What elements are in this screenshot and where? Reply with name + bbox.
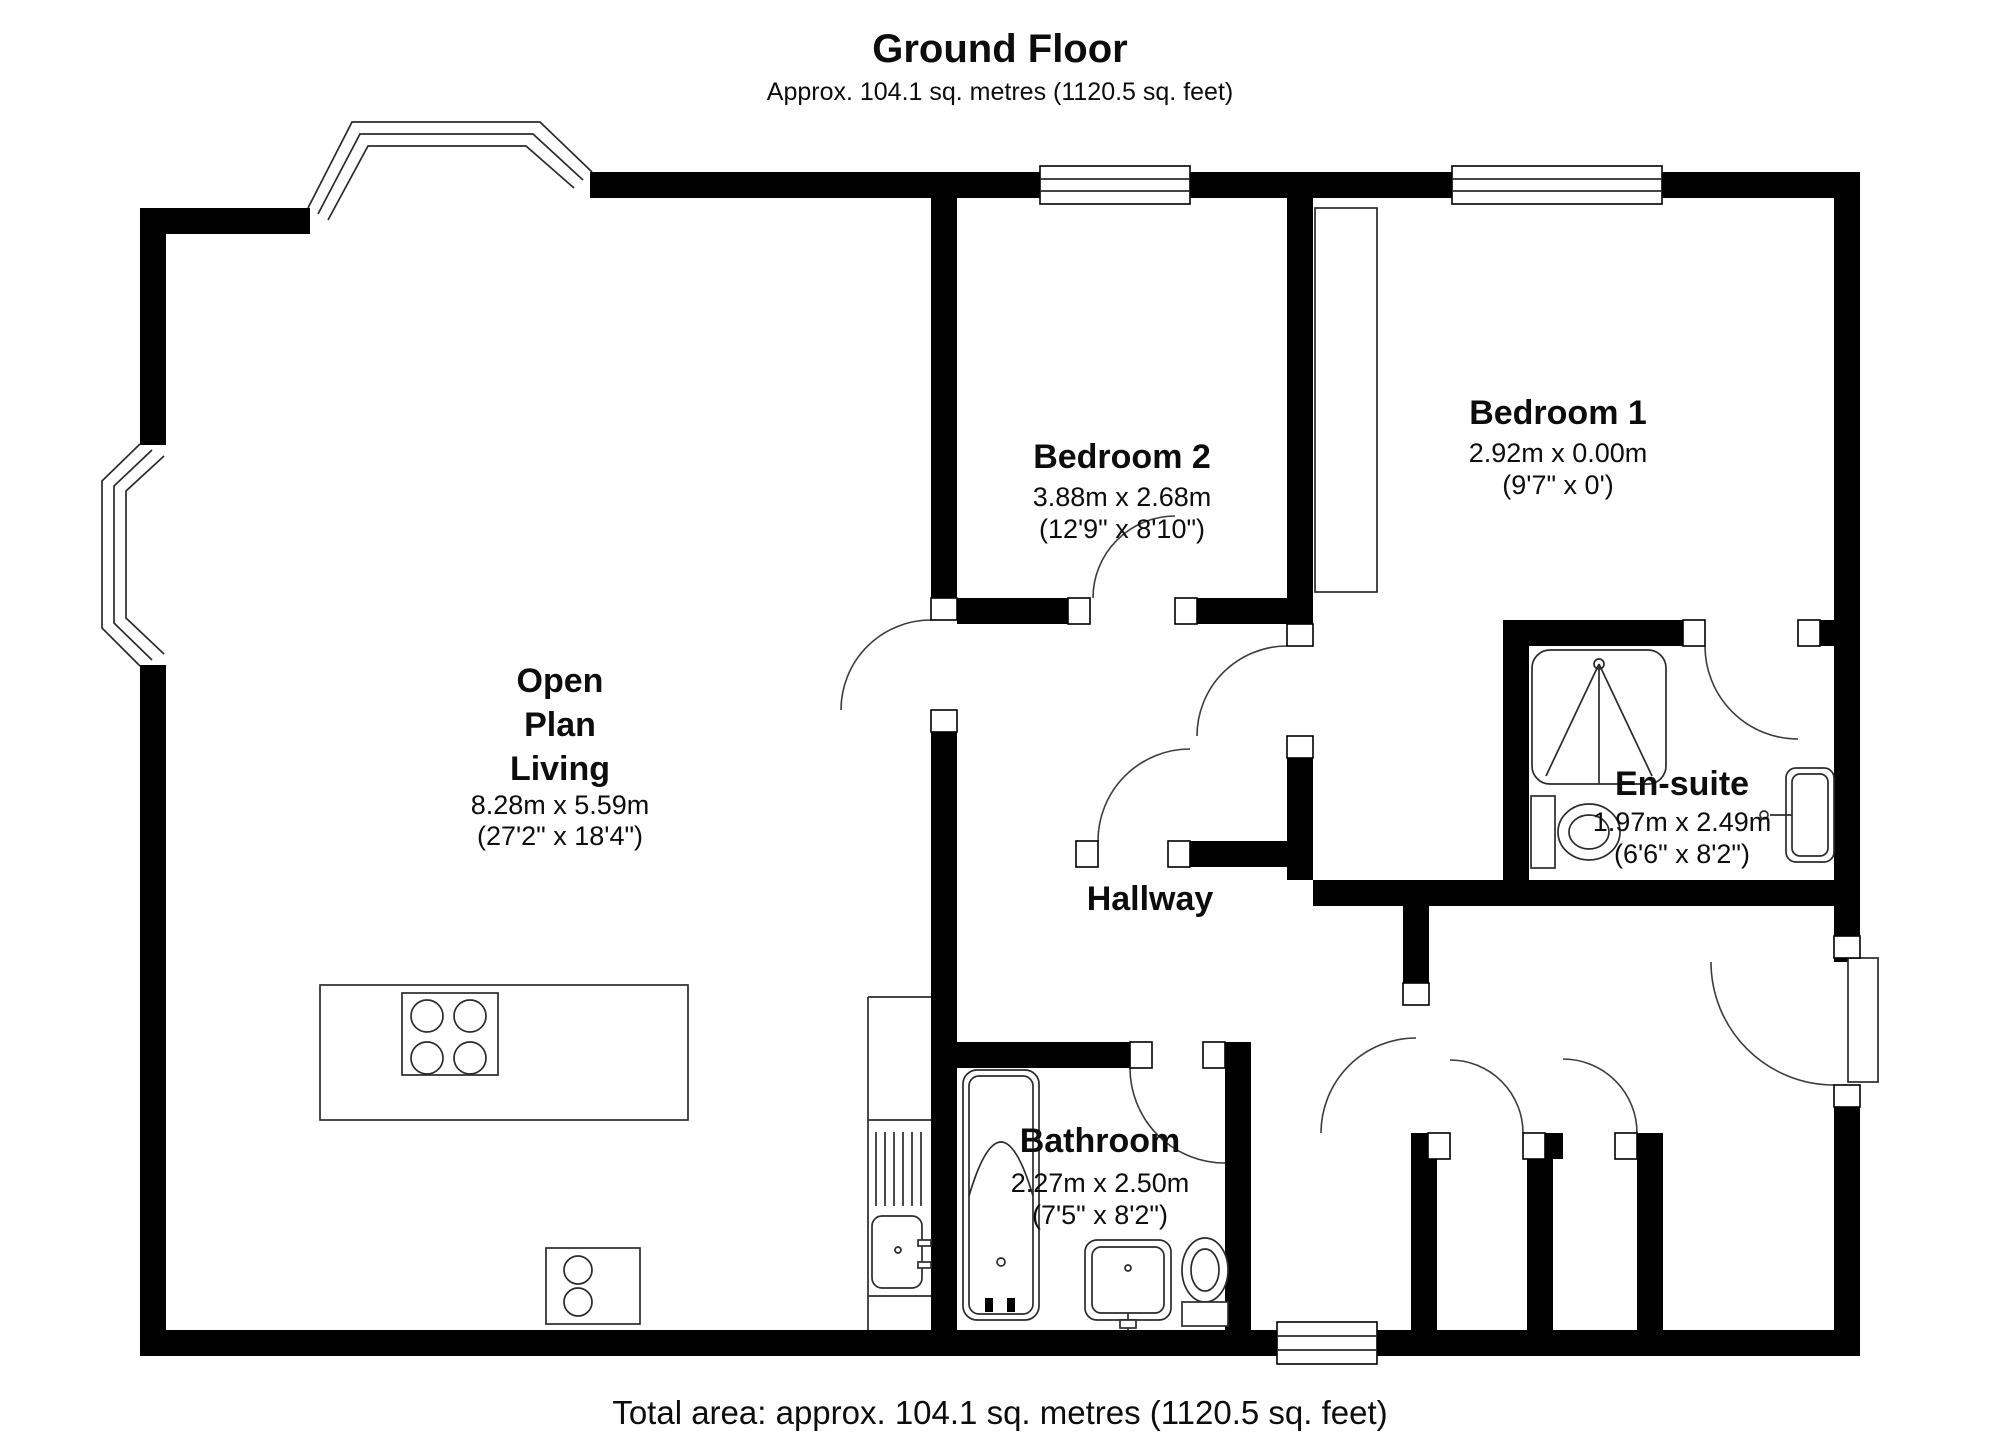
label-hallway: Hallway xyxy=(1087,880,1214,918)
bathroom-dims-metric: 2.27m x 2.50m xyxy=(1011,1168,1190,1198)
living-dims-imperial: (27'2" x 18'4") xyxy=(477,821,643,851)
door-exterior-leaf-icon xyxy=(1848,958,1878,1082)
ensuite-dims-metric: 1.97m x 2.49m xyxy=(1593,807,1772,837)
door-exterior-right-icon xyxy=(1711,962,1834,1085)
hob-icon xyxy=(402,993,498,1075)
interior-walls xyxy=(931,198,1834,1330)
window-bedroom2-icon xyxy=(1040,166,1190,204)
floorplan-canvas: Ground Floor Approx. 104.1 sq. metres (1… xyxy=(0,0,2000,1454)
window-bedroom1-icon xyxy=(1452,166,1662,204)
ensuite-dims-imperial: (6'6" x 8'2") xyxy=(1614,839,1750,869)
page-subtitle: Approx. 104.1 sq. metres (1120.5 sq. fee… xyxy=(767,78,1233,106)
bedroom1-dims-metric: 2.92m x 0.00m xyxy=(1469,438,1648,468)
door-store-b-icon xyxy=(1563,1059,1637,1133)
label-bedroom2: Bedroom 2 3.88m x 2.68m (12'9" x 8'10") xyxy=(1033,438,1212,544)
bedroom2-dims-imperial: (12'9" x 8'10") xyxy=(1039,514,1205,544)
door-ensuite-icon xyxy=(1705,646,1798,739)
living-name-line3: Living xyxy=(510,750,610,788)
door-jambs xyxy=(931,598,1860,1159)
bedroom1-name: Bedroom 1 xyxy=(1469,394,1647,432)
kitchen-fixtures xyxy=(320,985,931,1330)
bathroom-name: Bathroom xyxy=(1020,1122,1181,1160)
bathroom-toilet-icon xyxy=(1182,1238,1228,1326)
kitchen-sink-icon xyxy=(872,1216,931,1288)
wardrobe-bedroom1-icon xyxy=(1315,208,1377,592)
bathroom-dims-imperial: (7'5" x 8'2") xyxy=(1032,1200,1168,1230)
window-bottom-icon xyxy=(1277,1322,1377,1364)
bedroom2-dims-metric: 3.88m x 2.68m xyxy=(1033,482,1212,512)
shower-icon xyxy=(1532,650,1666,784)
living-dims-metric: 8.28m x 5.59m xyxy=(471,790,650,820)
bay-window-top-icon xyxy=(308,122,592,220)
label-open-plan-living: Open Plan Living 8.28m x 5.59m (27'2" x … xyxy=(471,662,650,851)
bay-window-left-icon xyxy=(102,444,164,666)
bedroom2-name: Bedroom 2 xyxy=(1033,438,1211,476)
kitchen-island-icon xyxy=(320,985,688,1120)
label-bathroom: Bathroom 2.27m x 2.50m (7'5" x 8'2") xyxy=(1011,1122,1190,1230)
door-living-icon xyxy=(841,620,931,710)
total-area-label: Total area: approx. 104.1 sq. metres (11… xyxy=(612,1394,1387,1431)
door-bedroom1-icon xyxy=(1197,646,1287,736)
living-name-line2: Plan xyxy=(524,706,596,744)
door-store-a-icon xyxy=(1450,1060,1523,1133)
hallway-name: Hallway xyxy=(1087,880,1214,918)
label-bedroom1: Bedroom 1 2.92m x 0.00m (9'7" x 0') xyxy=(1469,394,1648,500)
ensuite-name: En-suite xyxy=(1615,765,1749,803)
hob-unit-bottom-icon xyxy=(546,1248,640,1324)
door-lobby-icon xyxy=(1321,1038,1416,1133)
label-ensuite: En-suite 1.97m x 2.49m (6'6" x 8'2") xyxy=(1593,765,1772,869)
door-hall-corridor-icon xyxy=(1098,749,1190,841)
bathroom-basin-icon xyxy=(1085,1240,1171,1330)
bedroom1-dims-imperial: (9'7" x 0') xyxy=(1502,470,1613,500)
living-name-line1: Open xyxy=(517,662,604,700)
page-title: Ground Floor xyxy=(872,27,1128,71)
